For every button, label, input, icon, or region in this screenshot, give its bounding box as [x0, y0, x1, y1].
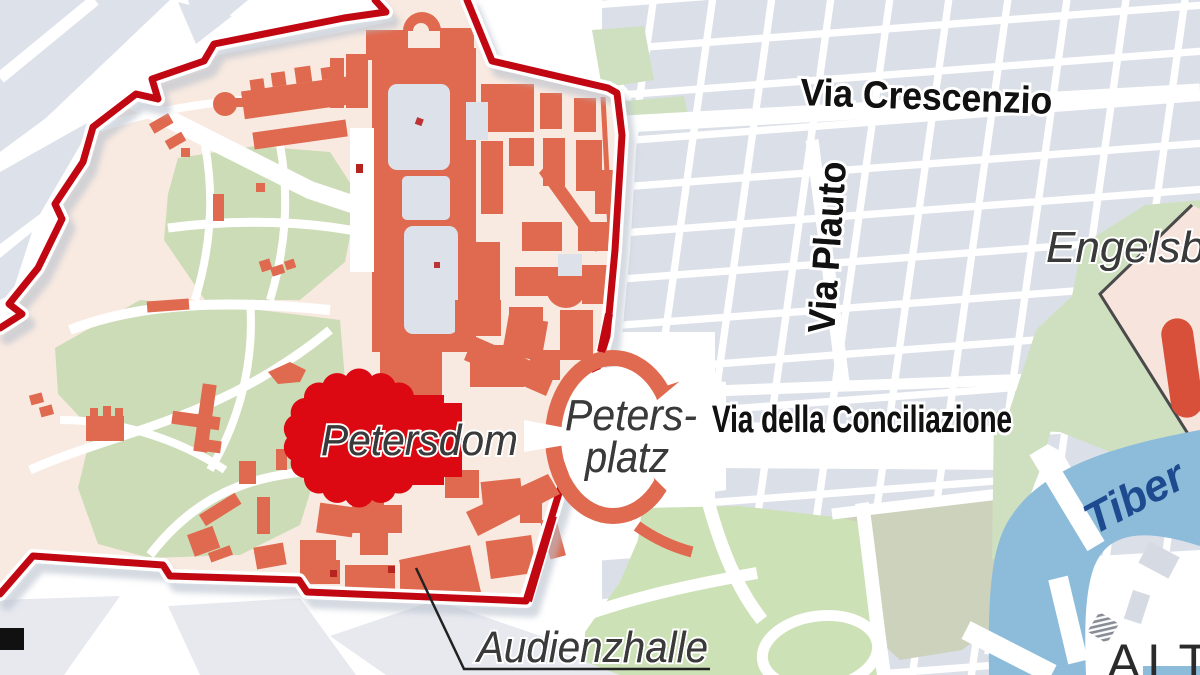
svg-text:Audienzhalle: Audienzhalle [474, 623, 708, 672]
svg-text:Via della Conciliazione: Via della Conciliazione [712, 399, 1012, 441]
svg-text:Petersdom: Petersdom [321, 416, 518, 465]
svg-text:platz: platz [583, 433, 669, 482]
svg-text:Engelsburg: Engelsburg [1046, 223, 1200, 272]
svg-text:Via Crescenzio: Via Crescenzio [800, 72, 1053, 123]
svg-text:ALTSTADT: ALTSTADT [1107, 634, 1200, 675]
